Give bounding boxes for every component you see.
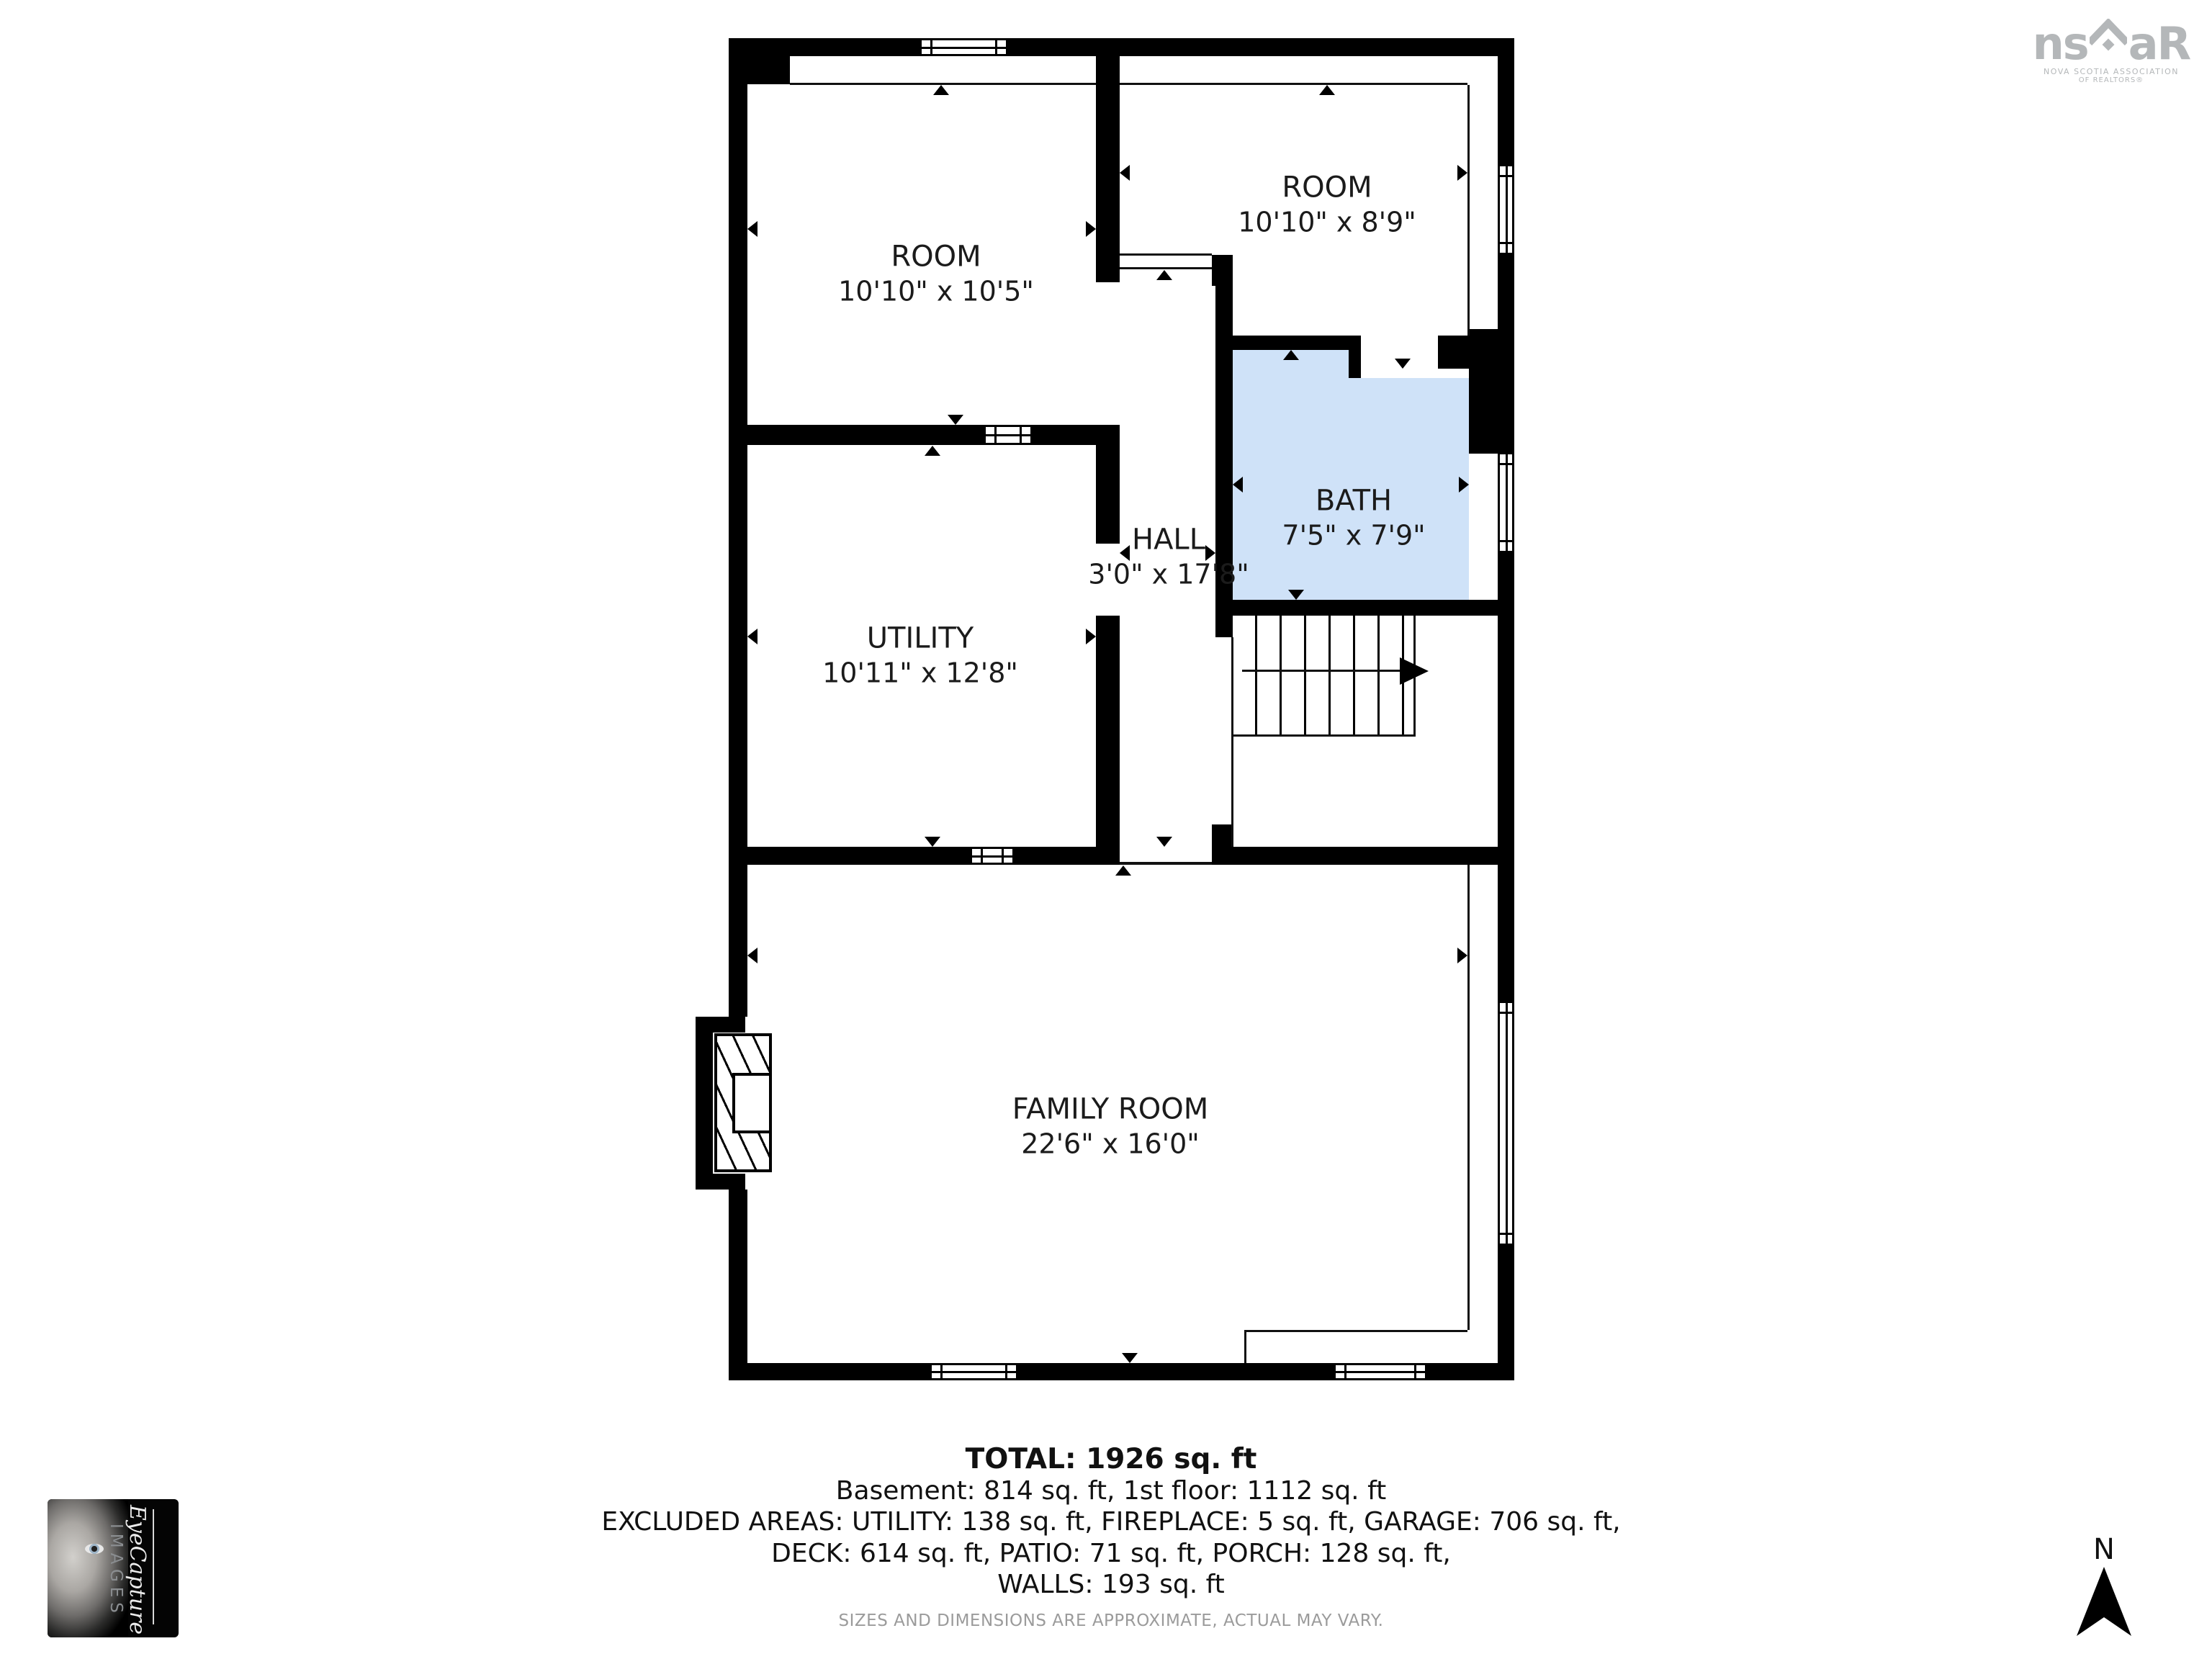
room-label-top-right: ROOM 10'10" x 8'9" [1238,170,1416,238]
window-divider [972,855,1012,858]
dimension-arrow [933,85,949,95]
dimension-arrow [1086,629,1096,644]
knee-wall-line [1467,85,1470,336]
nsar-logo: ns aR NOVA SCOTIA ASSOCIATION OF REALTOR… [2018,19,2205,84]
nsar-subtitle: NOVA SCOTIA ASSOCIATION [2018,67,2205,76]
wall-left [729,1190,747,1363]
eyecapture-images-text: IMAGES [107,1524,125,1632]
summary-line: Basement: 814 sq. ft, 1st floor: 1112 sq… [601,1475,1620,1506]
wall-bedroom-divider [1096,56,1120,282]
bath-floor-fill [1233,349,1349,600]
window-divider [1336,1371,1425,1373]
fireplace-firebox [732,1073,772,1133]
wall-right [1498,553,1514,1001]
room-label-utility: UTILITY 10'11" x 12'8" [822,621,1018,689]
window-divider [1506,166,1508,253]
wall-left [729,56,747,1017]
staircase [1233,616,1416,734]
eyecapture-rule [153,1509,154,1624]
dimension-arrow [1233,477,1243,493]
nsar-wordmark: ns aR [2018,19,2205,64]
wall-right [1498,56,1514,164]
window [1498,452,1514,553]
room-dimensions: 3'0" x 17'8" [1088,557,1249,590]
wall-right [1498,255,1514,336]
dimension-arrow [1459,477,1469,493]
dimension-arrow [925,446,940,456]
room-dimensions: 7'5" x 7'9" [1282,518,1425,552]
fireplace-arm [696,1174,745,1190]
staircase-direction-line [1242,670,1402,672]
cased-opening [984,425,1033,445]
room-label-hall: HALL 3'0" x 17'8" [1088,522,1249,590]
room-label-bath: BATH 7'5" x 7'9" [1282,483,1425,552]
dimension-arrow [747,629,757,644]
room-name: HALL [1088,522,1249,557]
room-name: UTILITY [822,621,1018,656]
north-arrow-icon [2077,1567,2131,1639]
dimension-arrow [1288,590,1304,600]
room-name: BATH [1282,483,1425,518]
nsar-subtitle: OF REALTORS® [2018,76,2205,84]
wall-bath-right-block [1469,329,1514,454]
wall-right [1498,1246,1514,1380]
staircase-edge [1233,734,1416,737]
area-summary: TOTAL: 1926 sq. ft Basement: 814 sq. ft,… [601,1443,1620,1630]
wall-hall-left [1096,616,1120,865]
window-divider [1506,454,1508,551]
dimension-arrow [948,415,963,425]
dimension-arrow [747,948,757,963]
window [1498,164,1514,255]
eyecapture-script-text: EyeCapture [125,1505,150,1632]
room-name: ROOM [1238,170,1416,205]
eye-icon [85,1544,104,1554]
dimension-arrow [925,837,940,847]
dimension-arrow [1457,165,1467,181]
dimension-arrow [1120,165,1130,181]
total-area: TOTAL: 1926 sq. ft [601,1443,1620,1475]
dimension-arrow [1395,359,1411,369]
window-divider [922,47,1006,49]
dimension-arrow [1086,221,1096,237]
wall-bath-top-right [1438,336,1469,369]
wall-bath-step [1349,336,1361,378]
room-label-family-room: FAMILY ROOM 22'6" x 16'0" [1012,1092,1208,1160]
wall-corner-block [729,56,790,84]
room-dimensions: 10'10" x 8'9" [1238,205,1416,238]
nsar-ns-text: ns [2033,24,2088,64]
floor-step-line [1244,1330,1467,1332]
door-opening-line [1120,253,1212,256]
room-dimensions: 10'10" x 10'5" [838,274,1034,307]
room-label-top-left: ROOM 10'10" x 10'5" [838,239,1034,307]
wall-familyroom-top [729,847,1096,865]
window-divider [1506,1003,1508,1244]
north-label: N [2093,1533,2115,1566]
window [1498,1001,1514,1246]
room-dimensions: 22'6" x 16'0" [1012,1127,1208,1160]
wall-room-utility [729,425,1120,445]
summary-line: WALLS: 193 sq. ft [601,1569,1620,1600]
room-name: FAMILY ROOM [1012,1092,1208,1127]
fireplace-arm [696,1017,745,1033]
wall-hall-doorpost [1212,255,1233,286]
disclaimer: SIZES AND DIMENSIONS ARE APPROXIMATE, AC… [601,1611,1620,1630]
dimension-arrow [1457,948,1467,963]
knee-wall-line [1120,83,1467,85]
dimension-arrow [1156,270,1172,280]
window [920,38,1008,56]
summary-line: EXCLUDED AREAS: UTILITY: 138 sq. ft, FIR… [601,1506,1620,1537]
wall-familyroom-top [1212,847,1514,865]
window [930,1363,1018,1380]
window [1334,1363,1427,1380]
room-dimensions: 10'11" x 12'8" [822,656,1018,689]
eyecapture-logo: IMAGES EyeCapture [48,1499,179,1637]
fireplace-chimney [696,1017,713,1190]
dimension-arrow [747,221,757,237]
nsar-ar-text: aR [2128,24,2190,64]
wall-familyroom-doorpost [1212,824,1233,847]
summary-line: DECK: 614 sq. ft, PATIO: 71 sq. ft, PORC… [601,1538,1620,1569]
floor-plan-page: ROOM 10'10" x 10'5" ROOM 10'10" x 8'9" H… [0,0,2212,1659]
floor-step-line [1244,1330,1246,1363]
door-opening-line [1120,267,1212,269]
dimension-arrow [1156,837,1172,847]
dimension-arrow [1115,866,1131,876]
window-divider [986,434,1030,436]
dimension-arrow [1319,85,1335,95]
dimension-arrow [1283,350,1299,360]
staircase-direction-arrow [1400,657,1429,685]
window-divider [932,1371,1016,1373]
knee-wall-line [1467,865,1470,1330]
room-name: ROOM [838,239,1034,274]
cased-opening [970,847,1015,865]
dimension-arrow [1122,1353,1138,1363]
door-opening-line [1120,862,1212,865]
wall-top [729,38,1514,56]
wall-bath-top [1233,336,1361,350]
house-roof-icon [2090,19,2127,60]
wall-bath-bottom [1215,600,1498,616]
